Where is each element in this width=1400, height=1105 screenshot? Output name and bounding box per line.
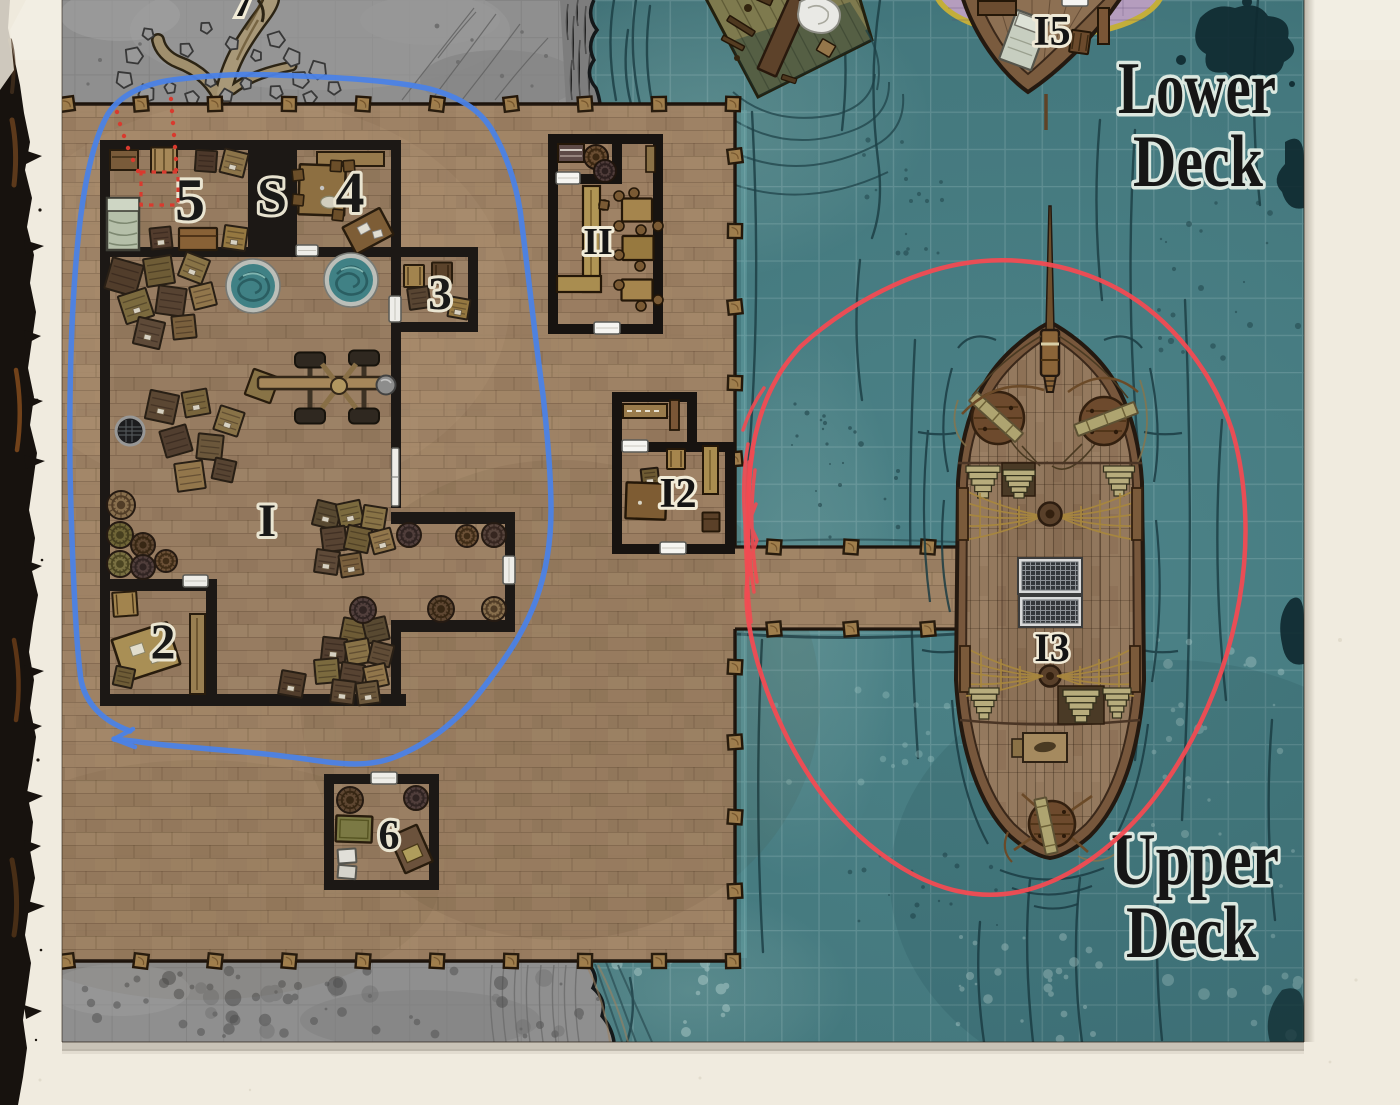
svg-text:Deck: Deck [1126,892,1257,974]
svg-text:Upper: Upper [1111,819,1279,901]
svg-text:I5: I5 [1033,9,1070,55]
svg-text:I3: I3 [1034,625,1070,670]
svg-text:II: II [583,221,613,263]
svg-text:I2: I2 [659,471,696,517]
svg-text:Deck: Deck [1133,121,1264,203]
svg-text:7: 7 [232,0,255,26]
svg-text:Lower: Lower [1118,48,1276,130]
